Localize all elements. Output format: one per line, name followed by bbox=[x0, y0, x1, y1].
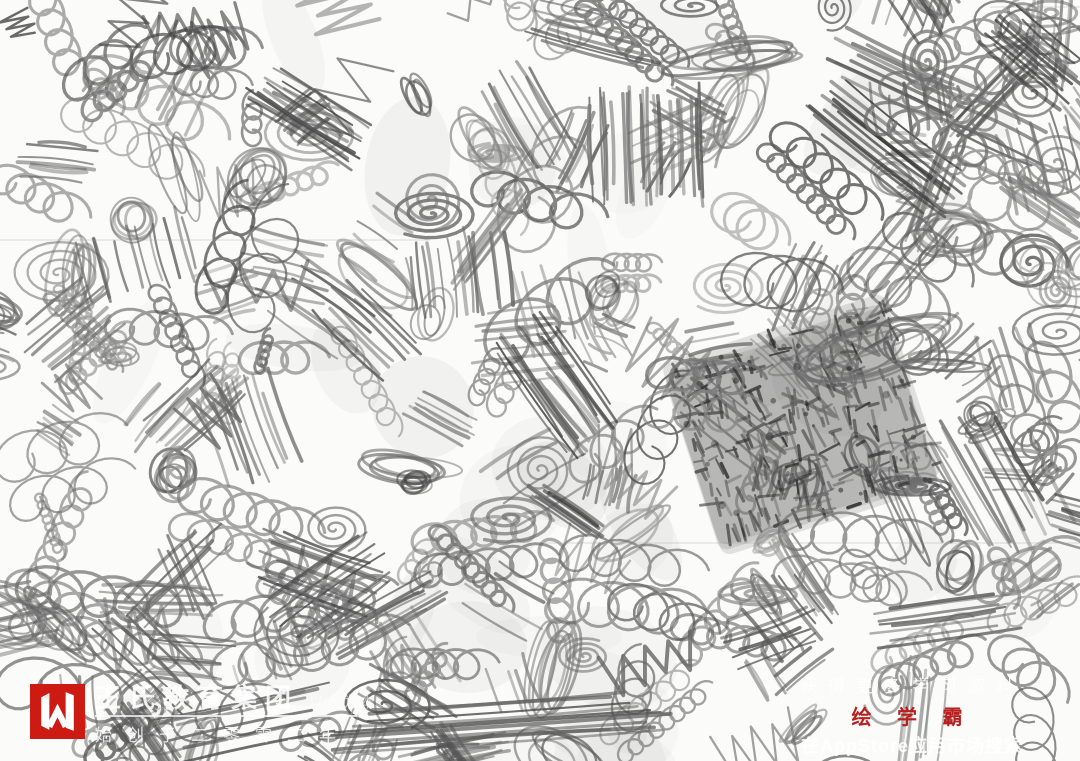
pencil-scribble-artwork bbox=[0, 0, 1080, 761]
scribble-sketch-page: 王氏教育集团 以人为本 始创于二零零二年 获得更多学习资料 绘 学 霸 在App… bbox=[0, 0, 1080, 761]
